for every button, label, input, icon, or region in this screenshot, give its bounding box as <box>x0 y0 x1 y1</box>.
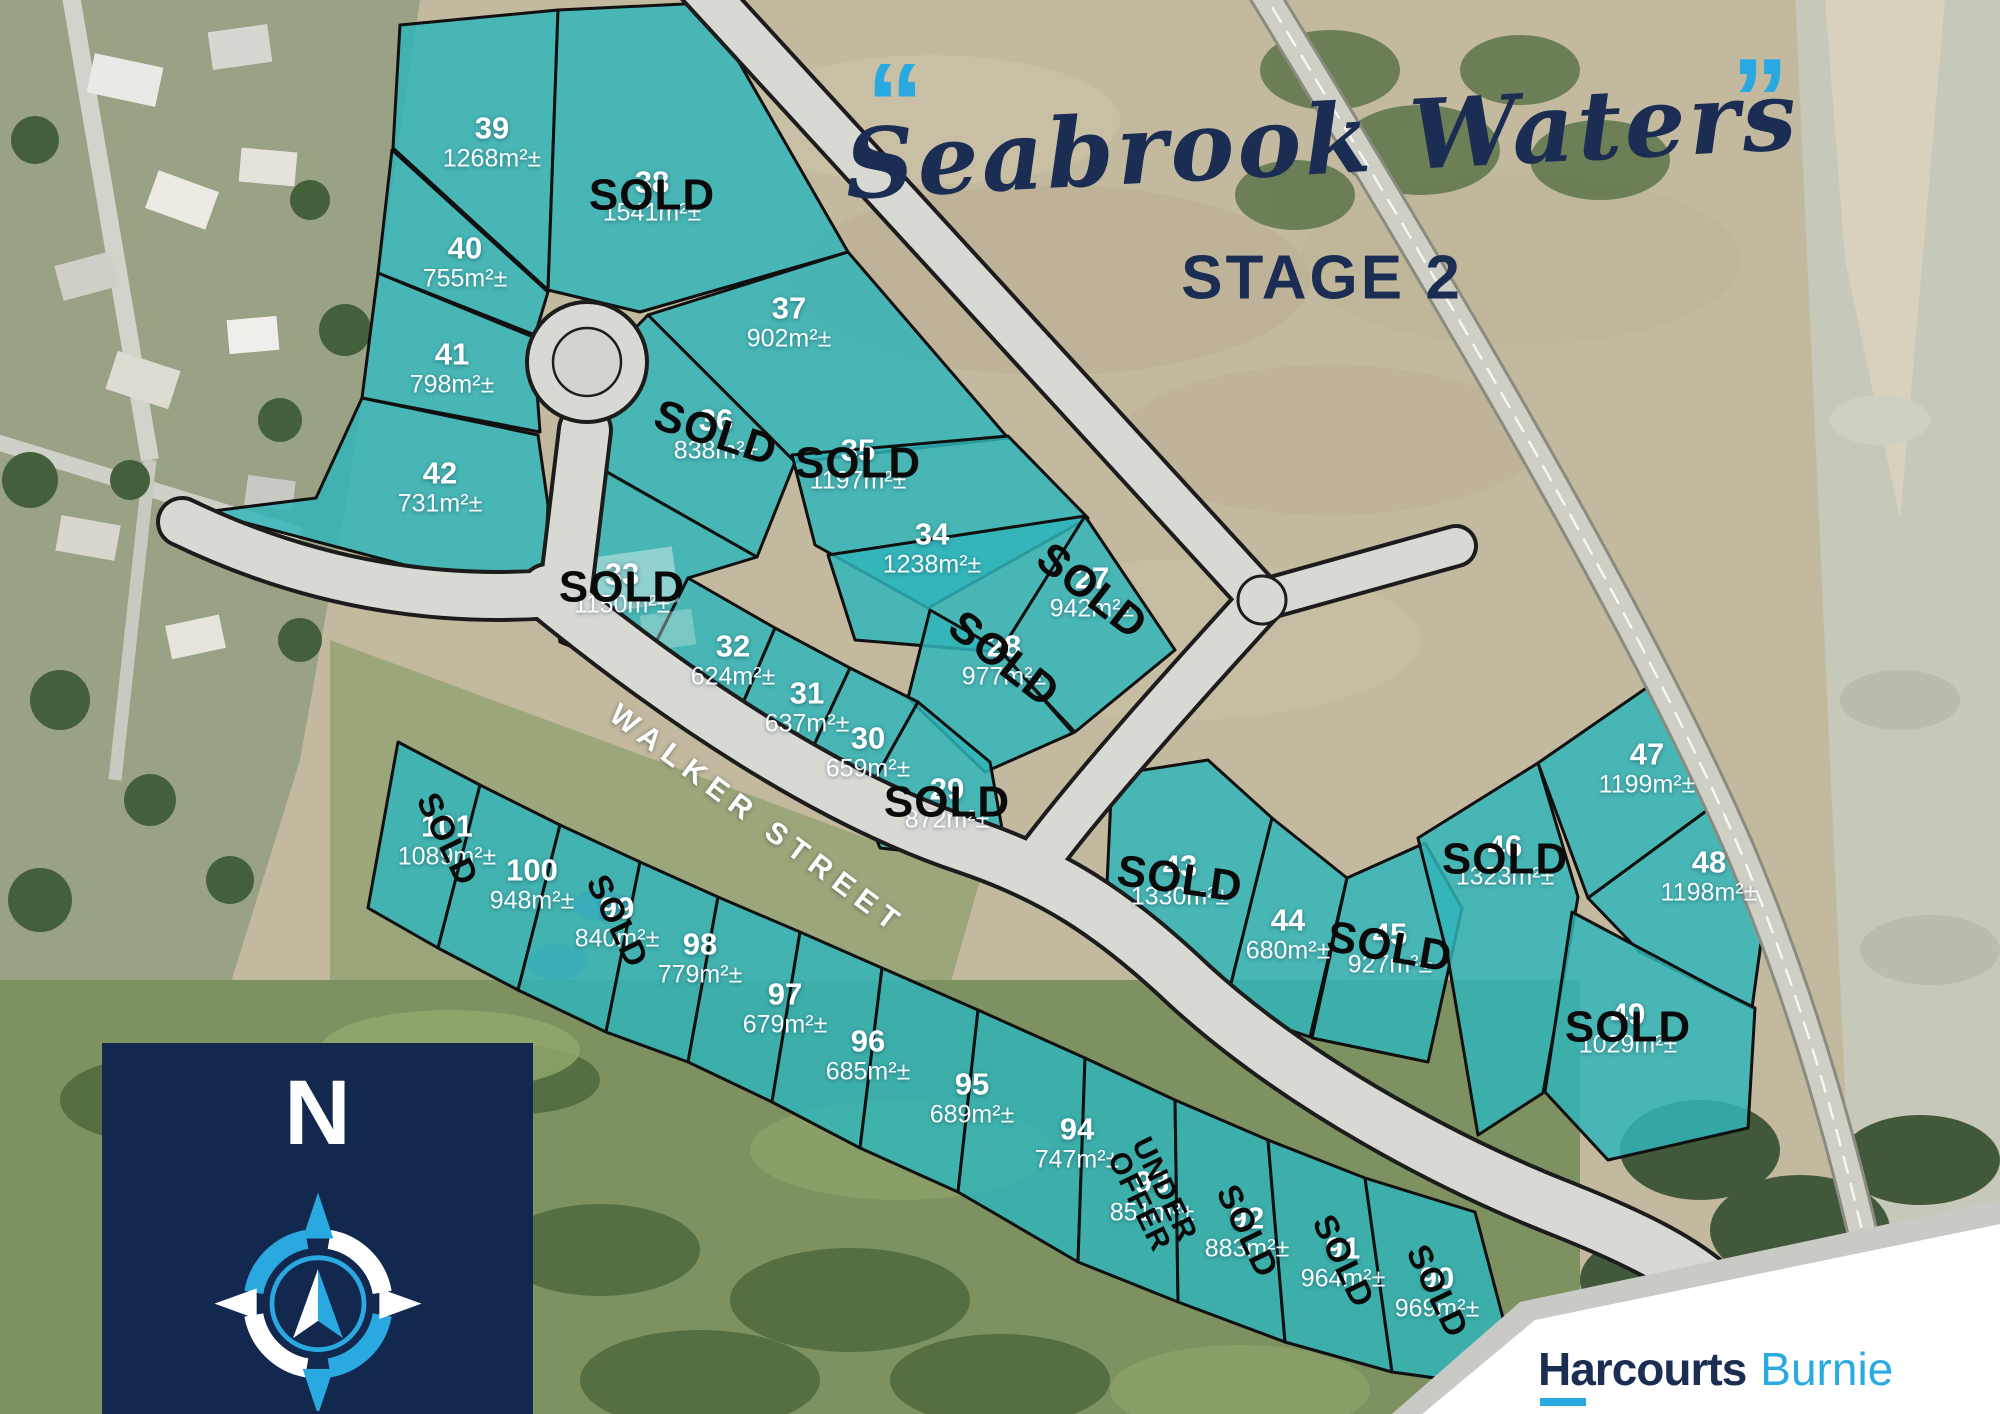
lot-label-47: 471199m²± <box>1599 739 1696 798</box>
lot-number-31: 31 <box>765 678 850 711</box>
lot-status-33: SOLD <box>559 568 685 608</box>
lot-number-47: 47 <box>1599 739 1696 772</box>
lot-number-98: 98 <box>658 929 743 962</box>
lot-size-40: 755m²± <box>423 265 508 291</box>
lot-label-35: 351197m²±SOLD <box>810 435 907 494</box>
lot-size-42: 731m²± <box>398 490 483 516</box>
lot-size-96: 685m²± <box>826 1058 911 1084</box>
lot-size-41: 798m²± <box>410 371 495 397</box>
lot-label-43: 431330m²±SOLD <box>1131 851 1230 910</box>
site-plan-canvas: 391268m²±381541m²±SOLD40755m²±37902m²±41… <box>0 0 2000 1414</box>
lot-label-32: 32624m²± <box>691 631 776 690</box>
lot-status-38: SOLD <box>589 176 715 216</box>
lot-label-96: 96685m²± <box>826 1026 911 1085</box>
lot-status-35: SOLD <box>795 444 921 484</box>
lot-label-27: 27942m²±SOLD <box>1050 563 1135 622</box>
lot-size-44: 680m²± <box>1246 937 1331 963</box>
lot-label-45: 45927m²±SOLD <box>1348 919 1433 978</box>
lot-label-38: 381541m²±SOLD <box>603 167 702 226</box>
lot-number-96: 96 <box>826 1026 911 1059</box>
lot-label-48: 481198m²± <box>1661 847 1758 906</box>
brand-office-name: Burnie <box>1760 1343 1893 1395</box>
lot-number-41: 41 <box>410 339 495 372</box>
lot-status-49: SOLD <box>1565 1008 1691 1048</box>
lot-label-92: 92883m²±SOLD <box>1205 1203 1290 1262</box>
lot-number-97: 97 <box>743 979 828 1012</box>
lot-number-42: 42 <box>398 458 483 491</box>
lot-label-36: 36838m²±SOLD <box>674 405 759 464</box>
lot-label-98: 98779m²± <box>658 929 743 988</box>
lot-number-34: 34 <box>883 519 982 552</box>
lot-number-32: 32 <box>691 631 776 664</box>
lot-label-28: 28977m²±SOLD <box>962 631 1047 690</box>
lot-status-45: SOLD <box>1324 917 1455 979</box>
lot-label-33: 331150m²±SOLD <box>574 559 671 618</box>
lot-size-34: 1238m²± <box>883 551 982 577</box>
lot-size-47: 1199m²± <box>1599 771 1696 797</box>
lot-number-48: 48 <box>1661 847 1758 880</box>
lot-size-95: 689m²± <box>930 1101 1015 1127</box>
lot-label-39: 391268m²± <box>443 113 542 172</box>
lot-number-100: 100 <box>490 855 575 888</box>
lot-number-40: 40 <box>423 233 508 266</box>
lot-label-40: 40755m²± <box>423 233 508 292</box>
lot-label-49: 491029m²±SOLD <box>1579 999 1678 1058</box>
lot-label-44: 44680m²± <box>1246 905 1331 964</box>
brand-agency-text: Harcourts <box>1538 1343 1746 1395</box>
lot-status-46: SOLD <box>1442 840 1568 880</box>
lot-size-37: 902m²± <box>747 325 832 351</box>
lot-label-99: 99840m²±SOLD <box>575 893 660 952</box>
lot-label-29: 29872m²±SOLD <box>905 774 990 833</box>
lot-label-93: 93851m²±UNDER OFFER <box>1110 1167 1195 1226</box>
lot-size-97: 679m²± <box>743 1011 828 1037</box>
lot-label-91: 91964m²±SOLD <box>1301 1233 1386 1292</box>
lot-label-100: 100948m²± <box>490 855 575 914</box>
lot-number-30: 30 <box>826 723 911 756</box>
brand-underline-bar <box>1540 1398 1586 1406</box>
lot-label-34: 341238m²± <box>883 519 982 578</box>
compass-north-label: N <box>284 1067 350 1159</box>
lot-label-90: 90969m²±SOLD <box>1395 1263 1480 1322</box>
lot-number-44: 44 <box>1246 905 1331 938</box>
brand-agency-name: Harcourts <box>1538 1342 1746 1396</box>
lot-label-97: 97679m²± <box>743 979 828 1038</box>
compass-rose-icon <box>203 1181 433 1411</box>
compass-panel: N <box>102 1043 533 1414</box>
lot-status-29: SOLD <box>884 783 1010 823</box>
lot-number-37: 37 <box>747 293 832 326</box>
lot-status-28: SOLD <box>942 605 1066 715</box>
lot-number-94: 94 <box>1035 1114 1120 1147</box>
lot-number-39: 39 <box>443 113 542 146</box>
lot-label-42: 42731m²± <box>398 458 483 517</box>
lot-size-48: 1198m²± <box>1661 879 1758 905</box>
lot-label-41: 41798m²± <box>410 339 495 398</box>
lot-size-32: 624m²± <box>691 663 776 689</box>
brand-lockup: HarcourtsBurnie <box>1538 1342 1893 1396</box>
lot-label-95: 95689m²± <box>930 1069 1015 1128</box>
lot-size-100: 948m²± <box>490 887 575 913</box>
lot-label-30: 30659m²± <box>826 723 911 782</box>
lot-label-37: 37902m²± <box>747 293 832 352</box>
lot-label-46: 461323m²±SOLD <box>1456 831 1555 890</box>
lot-size-98: 779m²± <box>658 961 743 987</box>
lot-status-27: SOLD <box>1030 537 1154 647</box>
lot-number-95: 95 <box>930 1069 1015 1102</box>
lot-label-101: 1011089m²±SOLD <box>398 811 497 870</box>
lot-size-39: 1268m²± <box>443 145 542 171</box>
